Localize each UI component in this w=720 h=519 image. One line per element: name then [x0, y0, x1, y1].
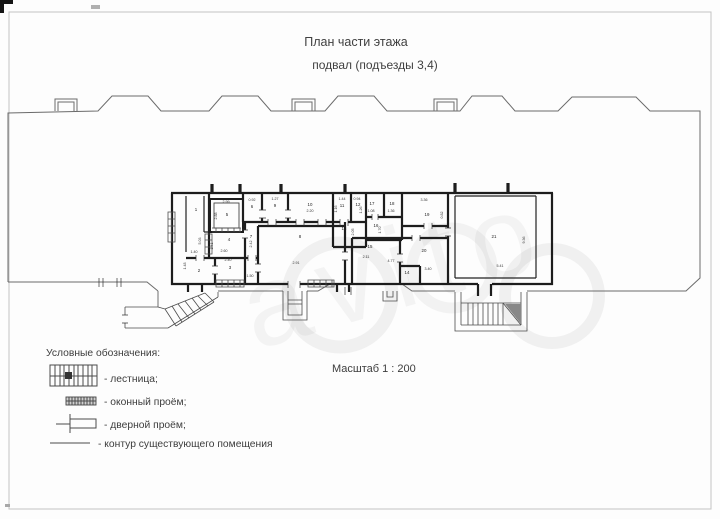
scanned-floor-plan-page: avito План части этажа подвал (подъезды …	[0, 0, 720, 519]
room-number: 2	[198, 268, 201, 273]
dimension-label: 1.36	[388, 209, 395, 213]
left-stair-outline	[125, 291, 218, 328]
room-number: 20	[422, 248, 427, 253]
staircase-icon-marker	[65, 372, 72, 379]
staircase-icon	[50, 365, 97, 386]
left-staircase	[122, 291, 218, 328]
dimension-label: 3.36	[421, 198, 428, 202]
legend: Условные обозначения: - лестница; - окон…	[46, 347, 273, 450]
room-number: 19	[425, 212, 430, 217]
dimension-label: 5.03	[198, 238, 202, 245]
page-subtitle: подвал (подъезды 3,4)	[312, 58, 438, 72]
room-number: 10	[308, 202, 313, 207]
dimension-label: 1.44	[339, 197, 346, 201]
staircase-icon-hatch	[50, 365, 97, 386]
door-opening-icon	[56, 414, 96, 433]
room-number: 15	[368, 244, 373, 249]
dimension-label: 2.91	[293, 261, 300, 265]
dimension-label: 2.42	[249, 241, 253, 248]
dimension-label: 2.40	[225, 258, 232, 262]
room-number: 18	[390, 201, 395, 206]
page-title: План части этажа	[304, 35, 408, 49]
room-number: 12	[356, 202, 361, 207]
left-stair-hatch	[165, 293, 214, 326]
room-number: 17	[370, 201, 375, 206]
room-number: 7	[250, 234, 253, 239]
dimension-label: 2.99	[223, 200, 230, 204]
bay-window-boxes	[55, 99, 457, 111]
door-icon-shape	[56, 414, 70, 433]
legend-label-contour: - контур существующего помещения	[98, 439, 273, 450]
window-opening-icon	[66, 397, 96, 405]
dimension-label: 1.41	[210, 243, 214, 250]
left-stair-door-ticks	[122, 315, 128, 323]
scale-label: Масштаб 1 : 200	[332, 363, 416, 375]
dimension-label: 4.77	[388, 259, 395, 263]
dimension-label: 2.05	[351, 229, 355, 236]
dimension-label: 3.40	[425, 267, 432, 271]
dimension-label: 1.48	[183, 263, 187, 270]
dimension-label: 1.27	[272, 197, 279, 201]
dimension-label: 2.60	[221, 249, 228, 253]
legend-header: Условные обозначения:	[46, 347, 160, 359]
dimension-label: 1.16	[334, 206, 338, 213]
dimension-label: 2.11	[363, 255, 370, 259]
dimension-label: 0.94	[354, 197, 361, 201]
door-icon-box	[70, 419, 96, 428]
dimension-label: 0.82	[440, 212, 444, 219]
scan-smudge-bottom	[5, 504, 10, 507]
room-number: 5	[226, 212, 229, 217]
room-number: 21	[492, 234, 497, 239]
room-number: 4	[228, 237, 231, 242]
room-number: 1	[195, 207, 198, 212]
legend-label-door: - дверной проём;	[104, 420, 186, 431]
watermark: avito	[227, 165, 599, 374]
dimension-label: 0.92	[249, 198, 256, 202]
room-number: 13	[342, 226, 347, 231]
dimension-label: 1.26	[359, 207, 363, 214]
room-number: 11	[340, 203, 345, 208]
dimension-label: 9.36	[522, 237, 526, 244]
dimension-label: 2.20	[307, 209, 314, 213]
dimension-label: 5.41	[497, 264, 504, 268]
scan-smudge	[91, 5, 100, 9]
scan-corner-mark	[0, 0, 13, 13]
legend-label-window: - оконный проём;	[104, 397, 186, 408]
floor-plan-drawing: avito План части этажа подвал (подъезды …	[0, 0, 720, 519]
room-number: 6	[251, 204, 254, 209]
dimension-label: 1.70	[378, 227, 382, 234]
window-opening-symbol	[168, 212, 175, 242]
legend-label-staircase: - лестница;	[104, 374, 158, 385]
dimension-label: 2.88	[214, 213, 218, 220]
room-number: 14	[405, 270, 410, 275]
dimension-label: 1.40	[191, 250, 198, 254]
room-number: 9	[274, 203, 277, 208]
dimension-label: 1.08	[368, 209, 375, 213]
dimension-label: 1.50	[247, 274, 254, 278]
